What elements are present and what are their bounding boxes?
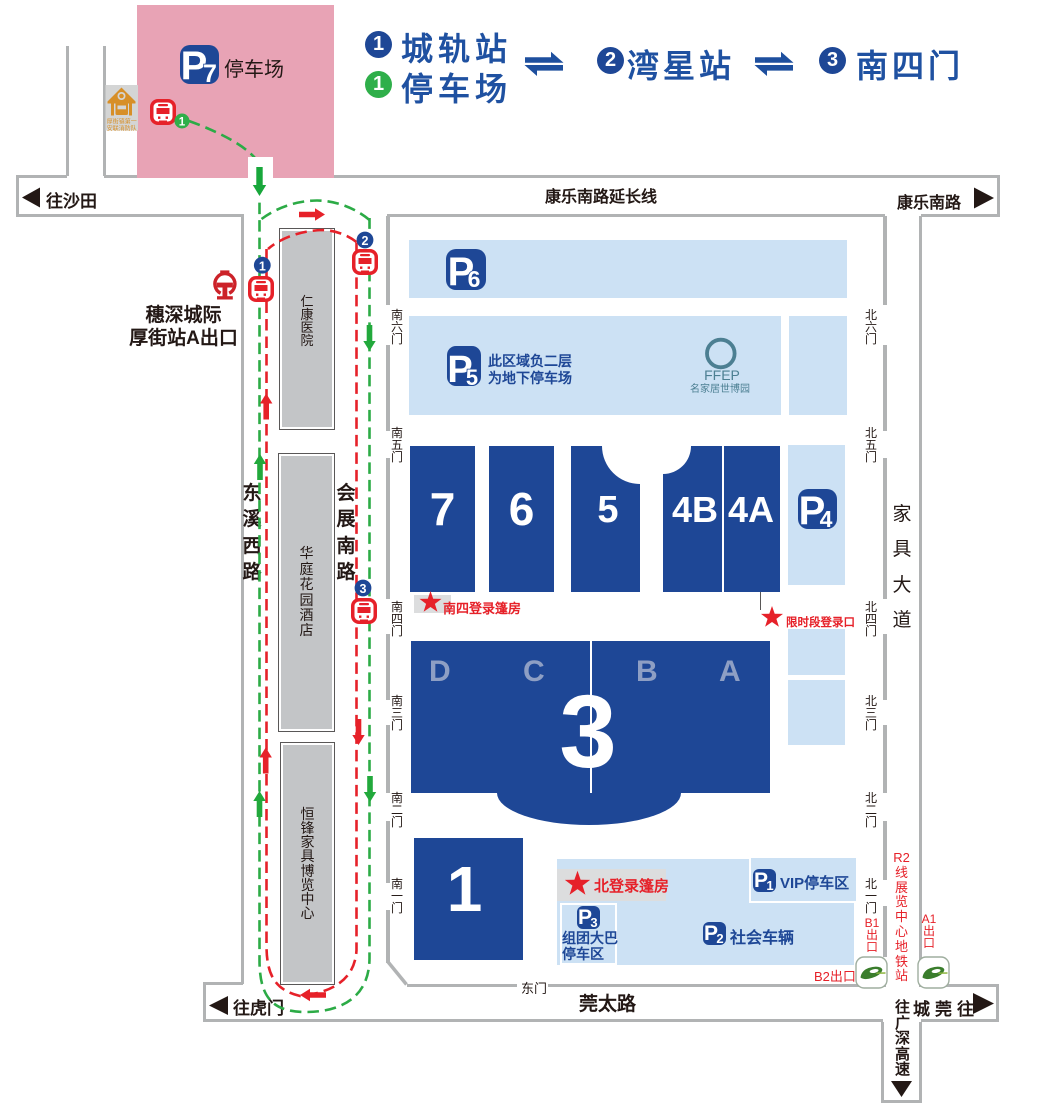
svg-text:6: 6 [468,266,481,292]
svg-text:5: 5 [597,489,618,531]
svg-text:1: 1 [766,878,773,893]
svg-text:4B: 4B [672,489,718,530]
svg-text:5: 5 [466,365,478,390]
svg-text:名家居世博园: 名家居世博园 [690,382,750,395]
svg-text:安联消防队: 安联消防队 [107,125,137,133]
svg-text:1: 1 [259,259,266,273]
svg-text:3: 3 [360,582,367,596]
svg-text:4: 4 [820,506,833,532]
svg-text:厚街镇第一: 厚街镇第一 [107,118,137,126]
svg-text:4A: 4A [728,489,774,530]
svg-text:2: 2 [716,931,723,946]
svg-text:3: 3 [590,915,597,930]
svg-text:2: 2 [362,234,369,248]
svg-text:FFEP: FFEP [704,367,740,383]
svg-text:1: 1 [179,117,186,129]
svg-text:7: 7 [203,60,217,88]
